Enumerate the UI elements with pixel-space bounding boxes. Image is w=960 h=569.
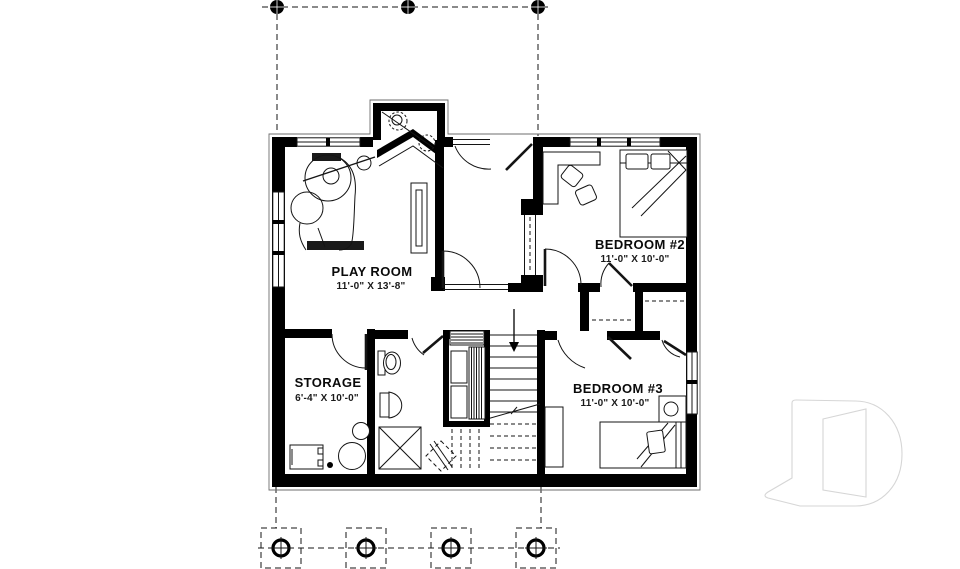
- floor-plan-page: PLAY ROOM 11'-0" X 13'-8" BEDROOM #2 11'…: [0, 0, 960, 569]
- window: [297, 138, 360, 146]
- bed: [600, 422, 686, 468]
- bathroom-fixtures: [378, 351, 402, 418]
- column-marker: [401, 0, 415, 14]
- d-logo-door-cutout: [823, 409, 866, 497]
- column-marker: [270, 0, 284, 14]
- d-logo-outline: [765, 400, 902, 506]
- d-logo-watermark: [765, 400, 902, 506]
- room-dim-storage: 6'-4" X 10'-0": [295, 393, 359, 404]
- playroom-furniture: [291, 153, 427, 253]
- door-bedroom3: [558, 337, 631, 368]
- desk-chair: [560, 164, 584, 188]
- room-label-storage: STORAGE: [295, 375, 362, 390]
- dresser: [545, 407, 563, 467]
- door-hall-top: [453, 140, 532, 171]
- half-wall: [525, 215, 536, 275]
- door-bedroom2: [545, 249, 581, 286]
- water-tank: [353, 423, 370, 440]
- furnace-closet: [443, 330, 490, 427]
- furnace-unit: [469, 347, 485, 419]
- stool: [291, 192, 323, 224]
- sink: [380, 392, 402, 418]
- footing-pad: [431, 528, 471, 568]
- room-dim-playroom: 11'-0" X 13'-8": [337, 281, 406, 292]
- floor-plan-canvas: PLAY ROOM 11'-0" X 13'-8" BEDROOM #2 11'…: [0, 0, 960, 569]
- tv-console: [411, 183, 427, 253]
- room-dim-bedroom2: 11'-0" X 10'-0": [601, 254, 670, 265]
- mechanical-equipment: [451, 386, 467, 418]
- storage-items: [290, 423, 421, 470]
- chair: [575, 184, 598, 206]
- door-storage: [332, 334, 366, 370]
- door-hall-south: [443, 251, 508, 290]
- mechanical-equipment: [451, 351, 467, 383]
- foundation-footings: [258, 487, 560, 568]
- bedroom2-furniture: [543, 150, 687, 237]
- window: [570, 138, 660, 146]
- washer: [290, 445, 333, 469]
- floor-drain: [327, 462, 333, 468]
- column-marker: [531, 0, 545, 14]
- shelf: [307, 241, 364, 250]
- column-grid-top: [262, 0, 552, 136]
- stair-bumpout: [377, 112, 444, 168]
- room-label-playroom: PLAY ROOM: [332, 264, 413, 279]
- door-bathroom: [412, 336, 443, 355]
- heat-pump-unit: [379, 427, 421, 469]
- room-label-bedroom2: BEDROOM #2: [595, 237, 685, 252]
- bed: [620, 150, 687, 237]
- window: [687, 352, 697, 414]
- toilet: [378, 351, 401, 375]
- nightstand: [659, 396, 686, 422]
- door-closet-bedroom3: [662, 340, 686, 357]
- door-closet-bedroom2: [601, 263, 632, 287]
- return-air-grille: [450, 331, 484, 345]
- footing-pad: [261, 528, 301, 568]
- room-dim-bedroom3: 11'-0" X 10'-0": [581, 398, 650, 409]
- room-label-bedroom3: BEDROOM #3: [573, 381, 663, 396]
- water-heater: [339, 443, 366, 470]
- window: [273, 192, 284, 287]
